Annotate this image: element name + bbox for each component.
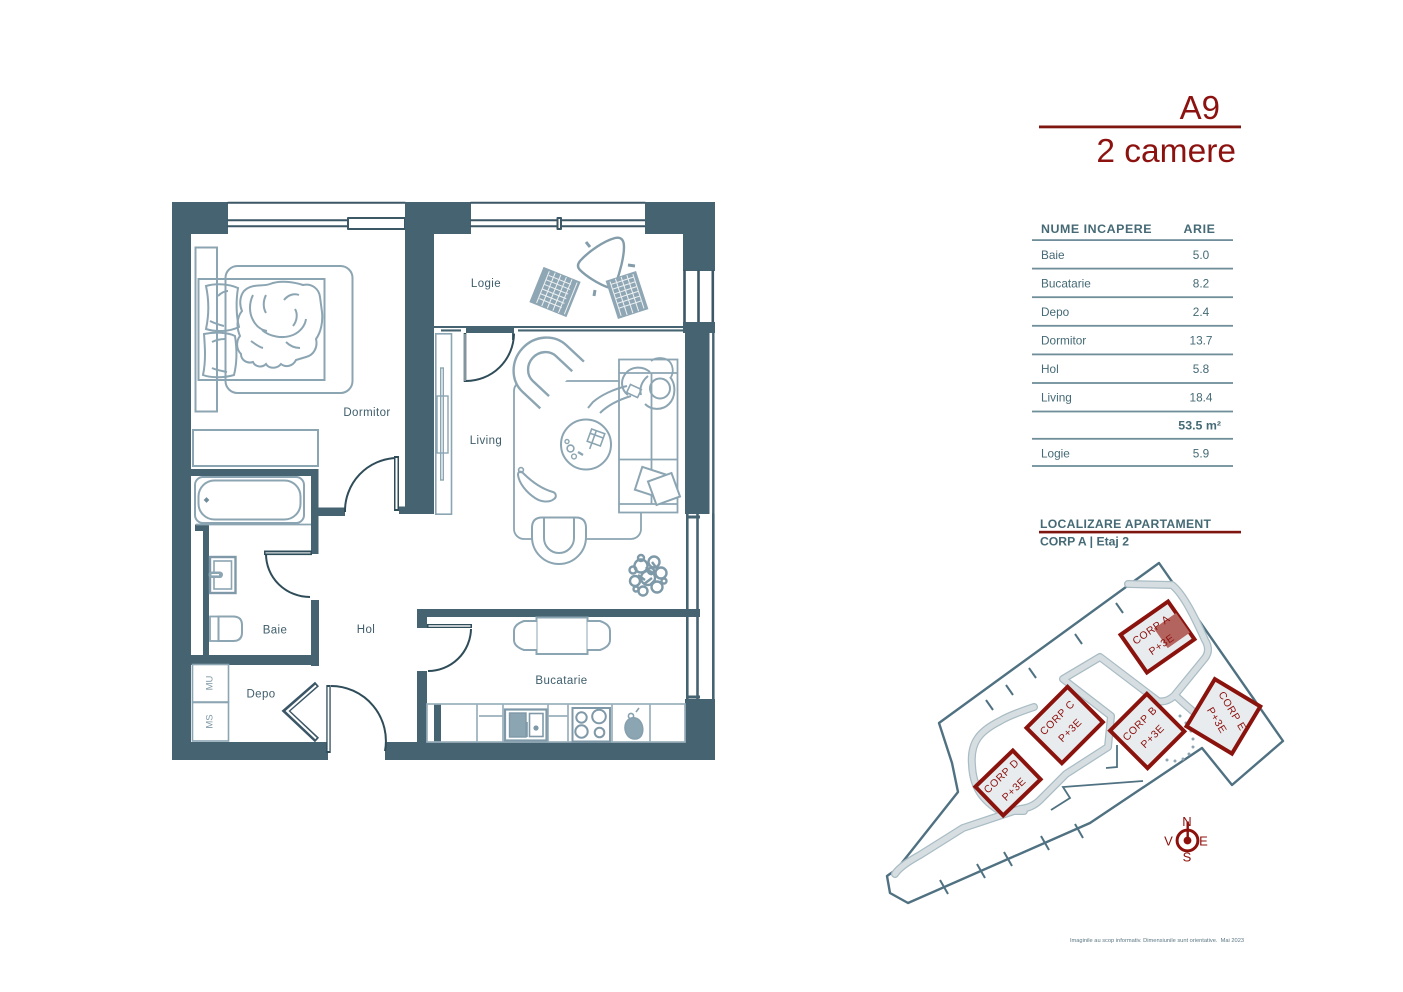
svg-text:LOCALIZARE APARTAMENT: LOCALIZARE APARTAMENT [1040,517,1212,531]
svg-text:Hol: Hol [1041,362,1059,376]
svg-text:5.9: 5.9 [1193,447,1209,461]
svg-text:S: S [1183,850,1192,865]
svg-text:2.4: 2.4 [1193,305,1210,319]
svg-text:2 camere: 2 camere [1096,133,1236,170]
svg-text:13.7: 13.7 [1190,334,1213,348]
svg-text:Bucatarie: Bucatarie [1041,277,1091,291]
svg-text:Logie: Logie [1041,447,1070,461]
svg-text:Depo: Depo [246,689,275,701]
svg-text:MU: MU [205,675,216,690]
svg-text:Imaginile au scop informativ.: Imaginile au scop informativ. Dimensiuni… [1070,938,1244,944]
svg-text:5.0: 5.0 [1193,248,1210,262]
svg-text:8.2: 8.2 [1193,277,1209,291]
svg-text:N: N [1182,814,1191,829]
svg-text:Baie: Baie [1041,248,1065,262]
svg-text:Living: Living [470,435,502,447]
svg-text:A9: A9 [1180,89,1220,126]
svg-text:Dormitor: Dormitor [343,407,390,419]
svg-text:18.4: 18.4 [1190,391,1213,405]
svg-text:E: E [1199,834,1208,849]
svg-text:Hol: Hol [357,624,375,636]
svg-text:CORP A | Etaj 2: CORP A | Etaj 2 [1040,535,1129,549]
svg-text:Dormitor: Dormitor [1041,334,1086,348]
svg-text:NUME INCAPERE: NUME INCAPERE [1041,222,1152,236]
svg-text:MS: MS [205,714,216,728]
svg-text:Depo: Depo [1041,305,1070,319]
svg-text:ARIE: ARIE [1183,222,1215,236]
svg-text:Bucatarie: Bucatarie [535,675,587,687]
svg-text:5.8: 5.8 [1193,362,1210,376]
svg-text:Baie: Baie [263,625,288,637]
svg-text:53.5 m²: 53.5 m² [1178,419,1221,433]
svg-text:Logie: Logie [471,278,501,290]
svg-text:V: V [1164,834,1173,849]
svg-text:Living: Living [1041,391,1072,405]
